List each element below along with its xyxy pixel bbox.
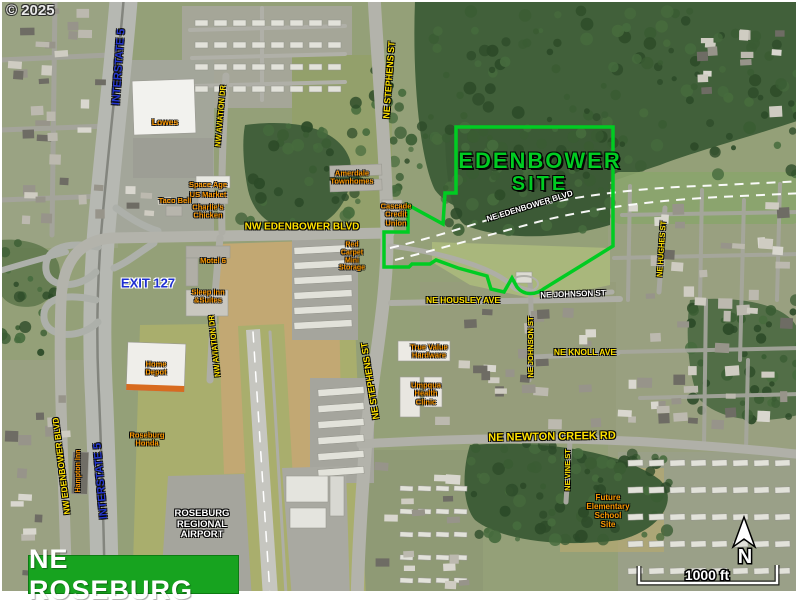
aerial-basemap: 1000 ft N — [0, 0, 800, 600]
scale-bar-label: 1000 ft — [685, 567, 730, 583]
area-banner: NE ROSEBURG — [28, 555, 239, 594]
north-arrow-label: N — [738, 546, 752, 568]
site-title: EDENBOWER SITE — [458, 150, 621, 194]
copyright-watermark: © 2025 — [6, 2, 55, 19]
area-banner-text: NE ROSEBURG — [29, 544, 238, 600]
map-viewport[interactable]: 1000 ft N NE STEPHENS STNE STEPHENS STNW… — [0, 0, 800, 600]
site-title-line1: EDENBOWER — [458, 150, 621, 172]
site-title-line2: SITE — [458, 174, 621, 194]
